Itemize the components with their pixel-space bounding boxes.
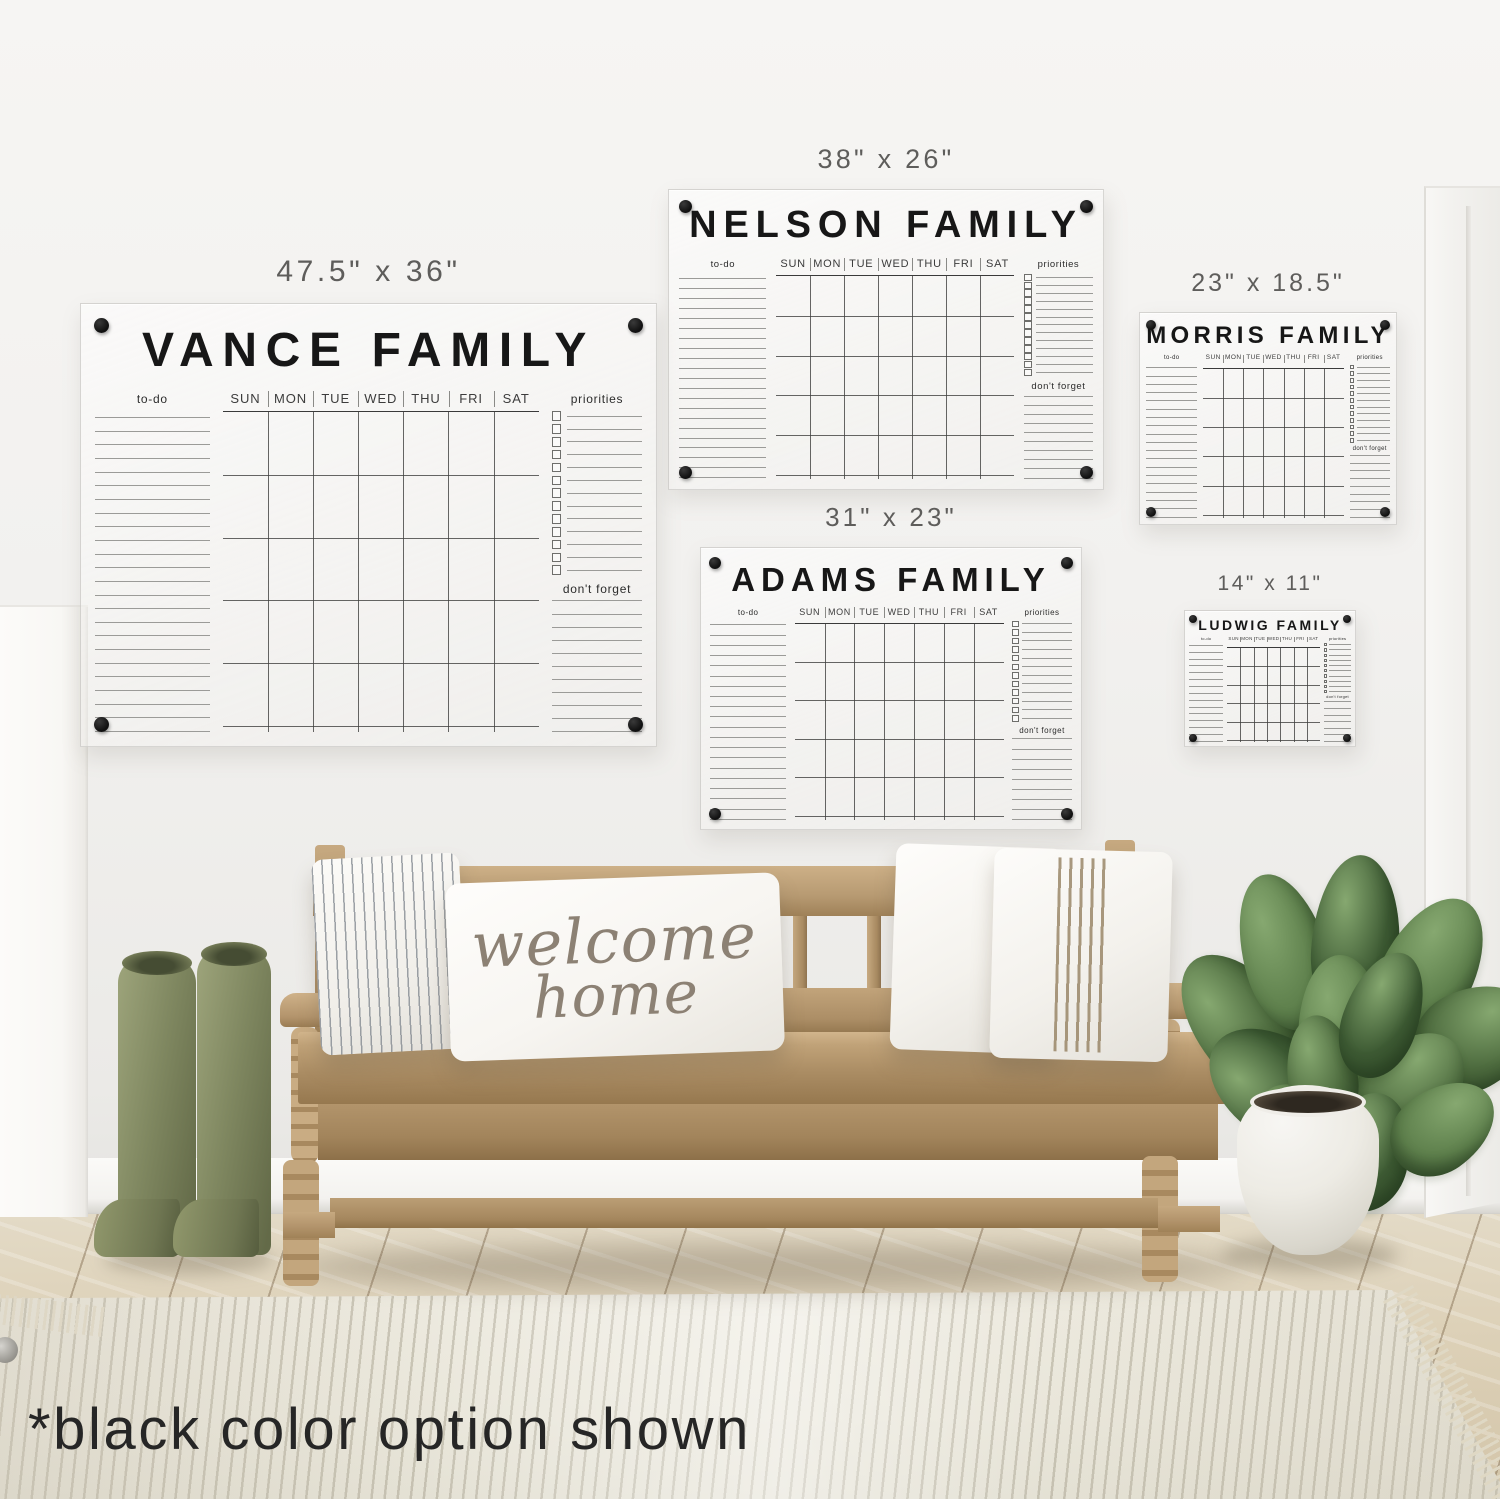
rule-line — [710, 645, 786, 646]
grain-sack-pillow — [989, 848, 1172, 1063]
rule-line — [95, 608, 210, 609]
checkbox — [1350, 438, 1355, 443]
checklist-row — [1024, 313, 1092, 321]
left-door — [0, 605, 88, 1217]
striped-pillow — [311, 852, 469, 1055]
rule-line — [95, 635, 210, 636]
checklist-row — [552, 540, 642, 550]
rule-line — [567, 506, 642, 507]
rule-line — [1329, 676, 1351, 677]
dont-forget-label: don't forget — [1024, 381, 1092, 392]
checklist-row — [1324, 669, 1351, 672]
day-header-thu: THU — [403, 392, 448, 405]
day-header-mon: MON — [268, 392, 313, 405]
checklist-row — [1012, 621, 1072, 627]
entryway-scene: 47.5" x 36" VANCE FAMILY to-do SUNMONTUE… — [0, 0, 1500, 1499]
grid-vline — [825, 624, 826, 820]
grid-hline — [795, 662, 1004, 663]
rule-line — [95, 595, 210, 596]
rule-line — [1357, 420, 1390, 421]
rule-line — [95, 513, 210, 514]
rule-line — [679, 457, 766, 458]
grid-vline — [810, 276, 811, 478]
rule-line — [1324, 708, 1351, 709]
calendar-morris: 23" x 18.5" MORRIS FAMILY to-do SUNMONTU… — [1139, 312, 1397, 525]
size-label: 14" x 11" — [1184, 572, 1356, 596]
rule-line — [710, 696, 786, 697]
rule-line — [1189, 679, 1223, 680]
checkbox — [1024, 282, 1032, 290]
rule-line — [1329, 665, 1351, 666]
day-header-tue: TUE — [1243, 355, 1263, 362]
grid-vline — [1280, 648, 1281, 742]
rule-line — [1329, 670, 1351, 671]
checklist-row — [1324, 685, 1351, 688]
rule-line — [710, 757, 786, 758]
rule-line — [679, 368, 766, 369]
rule-line — [1146, 417, 1197, 418]
checkbox — [1024, 361, 1032, 369]
bench-apron — [318, 1104, 1218, 1160]
dont-forget-label: don't forget — [1350, 446, 1390, 453]
grid-vline — [403, 412, 404, 732]
checkbox — [1012, 707, 1018, 713]
standoff-dot — [1146, 320, 1156, 330]
rule-line — [95, 649, 210, 650]
rule-line — [679, 378, 766, 379]
checklist-row — [1324, 643, 1351, 646]
rule-line — [1329, 644, 1351, 645]
dont-forget-label: don't forget — [1012, 726, 1072, 736]
grid-hline — [223, 726, 539, 727]
bench-stretcher — [1158, 1206, 1220, 1232]
rule-line — [1146, 384, 1197, 385]
rule-line — [95, 690, 210, 691]
rule-line — [1146, 425, 1197, 426]
todo-label: to-do — [1146, 355, 1197, 362]
rule-line — [1012, 738, 1072, 739]
rule-line — [710, 716, 786, 717]
rule-line — [710, 788, 786, 789]
day-header-sun: SUN — [223, 392, 268, 405]
checklist-row — [552, 424, 642, 434]
rule-line — [1329, 686, 1351, 687]
bench-stretcher — [283, 1212, 335, 1238]
grid-vline — [844, 276, 845, 478]
footnote-text: *black color option shown — [28, 1396, 751, 1463]
rule-line — [710, 706, 786, 707]
rain-boot — [197, 948, 271, 1255]
calendar-body: to-do SUNMONTUEWEDTHUFRISAT priorities d… — [679, 259, 1092, 479]
rule-line — [552, 679, 642, 680]
checklist-row — [1024, 361, 1092, 369]
checklist-row — [1024, 353, 1092, 361]
rule-line — [679, 477, 766, 478]
calendar-title: MORRIS FAMILY — [1146, 322, 1390, 350]
checkbox — [552, 411, 562, 421]
day-header-tue: TUE — [854, 608, 884, 617]
checklist-row — [552, 565, 642, 575]
rule-line — [1036, 364, 1092, 365]
size-label: 31" x 23" — [700, 502, 1082, 533]
day-header-thu: THU — [912, 259, 946, 270]
checkbox — [1324, 690, 1327, 693]
rule-line — [1189, 727, 1223, 728]
priorities-label: priorities — [1024, 259, 1092, 270]
grid-vline — [944, 624, 945, 820]
pot-rim — [1250, 1087, 1366, 1117]
grid-cells — [776, 276, 1014, 478]
checklist-row — [1012, 672, 1072, 678]
rule-line — [1324, 701, 1351, 702]
day-header-thu: THU — [914, 608, 944, 617]
rule-line — [1189, 700, 1223, 701]
rule-line — [710, 624, 786, 625]
grid-hline — [1227, 740, 1320, 741]
rule-line — [1024, 414, 1092, 415]
checkbox — [1024, 353, 1032, 361]
rule-line — [552, 614, 642, 615]
rule-line — [679, 338, 766, 339]
rule-line — [679, 318, 766, 319]
rule-line — [1189, 686, 1223, 687]
rule-line — [679, 348, 766, 349]
checkbox — [1012, 698, 1018, 704]
checklist-row — [1350, 418, 1390, 423]
priorities-checklist — [552, 411, 642, 575]
checkbox — [1024, 321, 1032, 329]
priorities-label: priorities — [1012, 608, 1072, 618]
grid-hline — [795, 700, 1004, 701]
grid-vline — [912, 276, 913, 478]
rule-line — [1022, 640, 1072, 641]
checklist-row — [1350, 365, 1390, 370]
standoff-dot — [679, 466, 692, 479]
rule-line — [1350, 486, 1390, 487]
checklist-row — [1024, 305, 1092, 313]
todo-column: to-do — [1189, 637, 1223, 742]
checklist-row — [1012, 629, 1072, 635]
rule-line — [95, 417, 210, 418]
rule-line — [679, 447, 766, 448]
boot-opening — [122, 951, 192, 975]
todo-lines — [95, 417, 210, 732]
calendar-adams: 31" x 23" ADAMS FAMILY to-do SUNMONTUEWE… — [700, 547, 1082, 830]
checkbox — [1350, 425, 1355, 430]
acrylic-panel: LUDWIG FAMILY to-do SUNMONTUEWEDTHUFRISA… — [1184, 610, 1356, 747]
rule-line — [567, 493, 642, 494]
boot-opening — [201, 942, 268, 966]
day-header-mon: MON — [810, 259, 844, 270]
checkbox — [552, 514, 562, 524]
checkbox — [1324, 659, 1327, 662]
rule-line — [1024, 432, 1092, 433]
checkbox — [1012, 672, 1018, 678]
rule-line — [1012, 769, 1072, 770]
todo-column: to-do — [1146, 355, 1197, 517]
grid-hline — [223, 663, 539, 664]
rule-line — [1036, 372, 1092, 373]
day-header-row: SUNMONTUEWEDTHUFRISAT — [223, 392, 539, 412]
rule-line — [1036, 317, 1092, 318]
rule-line — [1357, 433, 1390, 434]
checklist-row — [1324, 654, 1351, 657]
side-column: priorities don't forget — [1350, 355, 1390, 517]
day-header-wed: WED — [1263, 355, 1283, 362]
todo-column: to-do — [679, 259, 766, 479]
checkbox — [1324, 664, 1327, 667]
grid-vline — [974, 624, 975, 820]
day-header-row: SUNMONTUEWEDTHUFRISAT — [795, 608, 1004, 624]
grid-hline — [776, 356, 1014, 357]
grid-hline — [1227, 722, 1320, 723]
checkbox — [1324, 643, 1327, 646]
calendar-vance: 47.5" x 36" VANCE FAMILY to-do SUNMONTUE… — [80, 303, 657, 747]
grid-vline — [854, 624, 855, 820]
todo-column: to-do — [710, 608, 786, 820]
calendar-nelson: 38" x 26" NELSON FAMILY to-do SUNMONTUEW… — [668, 189, 1104, 490]
rule-line — [710, 819, 786, 820]
checklist-row — [552, 488, 642, 498]
calendar-title: ADAMS FAMILY — [710, 561, 1072, 599]
rule-line — [710, 809, 786, 810]
rule-line — [1146, 450, 1197, 451]
todo-lines — [710, 624, 786, 819]
side-column: priorities don't forget — [1012, 608, 1072, 820]
checkbox — [552, 553, 562, 563]
grid-vline — [1240, 648, 1241, 742]
month-grid: SUNMONTUEWEDTHUFRISAT — [1227, 637, 1320, 742]
checkbox — [1324, 669, 1327, 672]
checkbox — [1350, 398, 1355, 403]
rule-line — [552, 653, 642, 654]
standoff-dot — [1061, 808, 1073, 820]
checklist-row — [1024, 329, 1092, 337]
rule-line — [1036, 301, 1092, 302]
rule-line — [1189, 720, 1223, 721]
checklist-row — [1324, 680, 1351, 683]
checkbox — [1324, 654, 1327, 657]
grid-vline — [1304, 369, 1305, 518]
checkbox — [1350, 385, 1355, 390]
rule-line — [567, 544, 642, 545]
checklist-row — [1024, 282, 1092, 290]
bench-shadow — [292, 1244, 1242, 1290]
rule-line — [679, 298, 766, 299]
day-header-sun: SUN — [1203, 355, 1223, 362]
rule-line — [1350, 494, 1390, 495]
checkbox — [1012, 638, 1018, 644]
day-header-fri: FRI — [946, 259, 980, 270]
rule-line — [1022, 701, 1072, 702]
rule-line — [552, 705, 642, 706]
calendar-title: VANCE FAMILY — [95, 323, 642, 378]
checkbox — [1012, 646, 1018, 652]
checklist-row — [552, 527, 642, 537]
day-header-thu: THU — [1284, 355, 1304, 362]
rule-line — [1350, 463, 1390, 464]
rule-line — [710, 778, 786, 779]
checklist-row — [1324, 648, 1351, 651]
day-header-wed: WED — [884, 608, 914, 617]
rule-line — [1189, 645, 1223, 646]
day-header-sun: SUN — [795, 608, 825, 617]
grid-hline — [1203, 486, 1344, 487]
rule-line — [1146, 467, 1197, 468]
checkbox — [1012, 655, 1018, 661]
grid-cells — [1203, 369, 1344, 518]
rule-line — [95, 540, 210, 541]
rule-line — [710, 655, 786, 656]
rule-line — [567, 429, 642, 430]
day-header-mon: MON — [1223, 355, 1243, 362]
checkbox — [552, 450, 562, 460]
rule-line — [1022, 718, 1072, 719]
rule-line — [95, 472, 210, 473]
checkbox — [1024, 313, 1032, 321]
month-grid: SUNMONTUEWEDTHUFRISAT — [1203, 355, 1344, 517]
priorities-checklist — [1324, 643, 1351, 693]
rule-line — [1357, 380, 1390, 381]
day-header-wed: WED — [878, 259, 912, 270]
rule-line — [1357, 413, 1390, 414]
checklist-row — [552, 514, 642, 524]
checkbox — [1350, 371, 1355, 376]
grid-hline — [776, 435, 1014, 436]
rule-line — [710, 665, 786, 666]
rule-line — [95, 676, 210, 677]
calendar-title: LUDWIG FAMILY — [1189, 617, 1351, 633]
checklist-row — [1012, 655, 1072, 661]
grid-vline — [268, 412, 269, 732]
checkbox — [1324, 685, 1327, 688]
day-header-tue: TUE — [313, 392, 358, 405]
dont-forget-lines — [1012, 738, 1072, 819]
checkbox — [1024, 345, 1032, 353]
dont-forget-lines — [552, 600, 642, 732]
checkbox — [1012, 681, 1018, 687]
standoff-dot — [94, 717, 109, 732]
rule-line — [95, 567, 210, 568]
rule-line — [1357, 440, 1390, 441]
rule-line — [552, 627, 642, 628]
grid-hline — [1203, 427, 1344, 428]
rule-line — [1329, 691, 1351, 692]
day-header-tue: TUE — [1254, 637, 1267, 642]
rule-line — [710, 635, 786, 636]
checklist-row — [1350, 405, 1390, 410]
checklist-row — [1024, 345, 1092, 353]
rule-line — [679, 308, 766, 309]
checkbox — [1324, 648, 1327, 651]
rule-line — [679, 408, 766, 409]
standoff-dot — [1189, 734, 1197, 742]
checklist-row — [1012, 698, 1072, 704]
rule-line — [1350, 470, 1390, 471]
bench-stretcher — [330, 1198, 1158, 1228]
rule-line — [567, 557, 642, 558]
todo-label: to-do — [710, 608, 786, 618]
grid-hline — [1203, 398, 1344, 399]
day-header-sat: SAT — [980, 259, 1014, 270]
dont-forget-label: don't forget — [552, 582, 642, 596]
month-grid: SUNMONTUEWEDTHUFRISAT — [776, 259, 1014, 479]
rule-line — [1012, 779, 1072, 780]
rule-line — [1012, 759, 1072, 760]
checklist-row — [1012, 681, 1072, 687]
rule-line — [1024, 396, 1092, 397]
grid-vline — [448, 412, 449, 732]
checkbox — [1024, 289, 1032, 297]
rule-line — [710, 768, 786, 769]
rule-line — [1146, 500, 1197, 501]
rule-line — [1146, 400, 1197, 401]
grid-vline — [1267, 648, 1268, 742]
checkbox — [1012, 629, 1018, 635]
checklist-row — [1324, 674, 1351, 677]
rule-line — [95, 485, 210, 486]
todo-label: to-do — [1189, 637, 1223, 642]
acrylic-panel: ADAMS FAMILY to-do SUNMONTUEWEDTHUFRISAT… — [700, 547, 1082, 830]
checklist-row — [1024, 274, 1092, 282]
checklist-row — [1350, 385, 1390, 390]
checkbox — [552, 527, 562, 537]
rule-line — [710, 747, 786, 748]
acrylic-panel: NELSON FAMILY to-do SUNMONTUEWEDTHUFRISA… — [668, 189, 1104, 490]
checkbox — [552, 424, 562, 434]
checkbox — [1012, 689, 1018, 695]
rule-line — [95, 663, 210, 664]
rule-line — [1357, 373, 1390, 374]
checklist-row — [1350, 411, 1390, 416]
rule-line — [552, 731, 642, 732]
rule-line — [95, 499, 210, 500]
rule-line — [1324, 721, 1351, 722]
checkbox — [1350, 411, 1355, 416]
rule-line — [1357, 387, 1390, 388]
checkbox — [552, 540, 562, 550]
rule-line — [1329, 649, 1351, 650]
todo-lines — [679, 278, 766, 479]
checklist-row — [1024, 289, 1092, 297]
rule-line — [552, 600, 642, 601]
rule-line — [1036, 356, 1092, 357]
rule-line — [1357, 407, 1390, 408]
day-header-wed: WED — [1267, 637, 1280, 642]
rule-line — [567, 531, 642, 532]
grid-vline — [1243, 369, 1244, 518]
checkbox — [1024, 274, 1032, 282]
rule-line — [95, 717, 210, 718]
rule-line — [1146, 367, 1197, 368]
checklist-row — [1012, 646, 1072, 652]
rule-line — [1189, 672, 1223, 673]
standoff-dot — [1343, 734, 1351, 742]
checklist-row — [1012, 707, 1072, 713]
rule-line — [552, 692, 642, 693]
priorities-label: priorities — [552, 392, 642, 406]
checklist-row — [1012, 689, 1072, 695]
rule-line — [1024, 441, 1092, 442]
checkbox — [552, 501, 562, 511]
rule-line — [567, 467, 642, 468]
rule-line — [1357, 400, 1390, 401]
calendar-title: NELSON FAMILY — [679, 204, 1092, 248]
grid-vline — [494, 412, 495, 732]
rule-line — [567, 454, 642, 455]
grid-vline — [1223, 369, 1224, 518]
grid-hline — [795, 739, 1004, 740]
